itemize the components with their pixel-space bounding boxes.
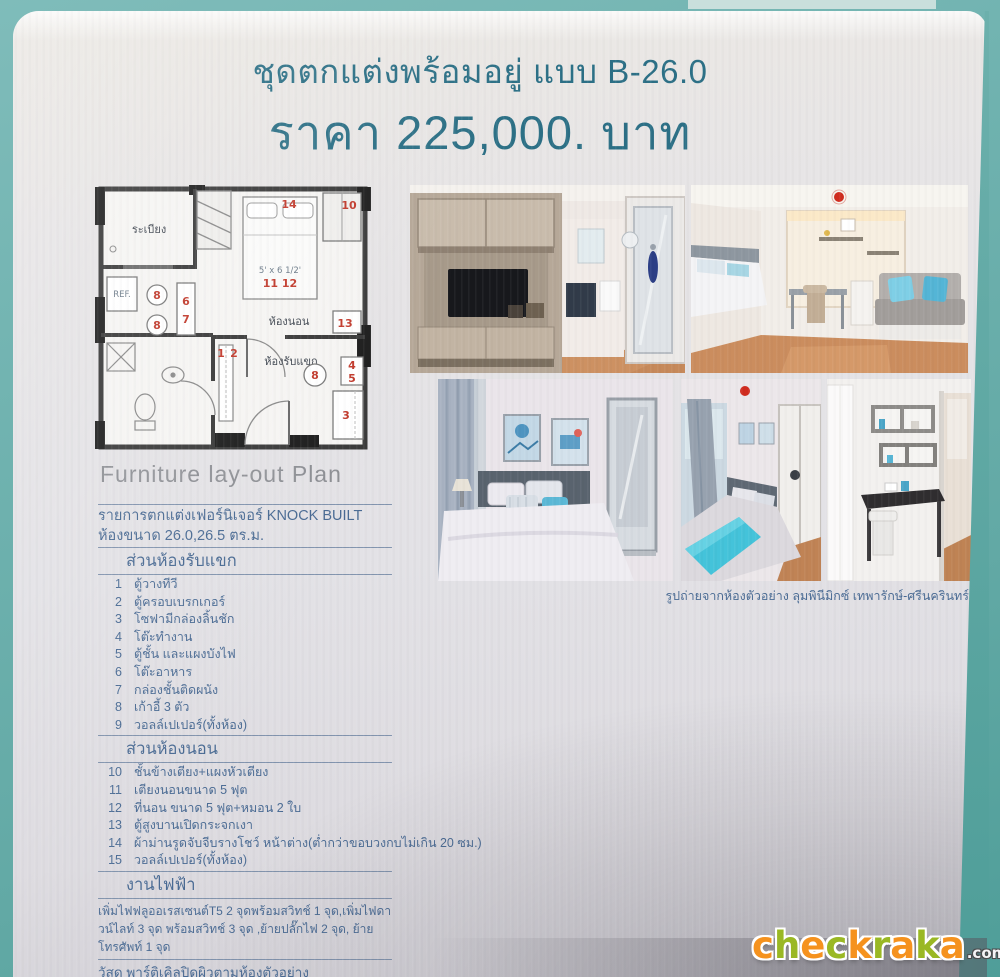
furniture-item: 8เก้าอี้ 3 ตัว [98,699,392,717]
furniture-item: 15วอลล์เปเปอร์(ทั้งห้อง) [98,852,392,870]
marker-8c: 8 [311,369,319,382]
item-label: วอลล์เปเปอร์(ทั้งห้อง) [134,717,247,735]
marker-4: 4 [348,359,356,372]
item-number: 6 [98,664,122,682]
photo-living-room-tv-wall-art [410,185,685,373]
marker-1: 1 [217,347,225,360]
furniture-item: 1ตู้วางทีวี [98,576,392,594]
item-number: 9 [98,717,122,735]
furniture-item: 13ตู้สูงบานเปิดกระจกเงา [98,817,392,835]
item-label: ตู้ชั้น และแผงบังไฟ [134,646,236,664]
item-label: วอลล์เปเปอร์(ทั้งห้อง) [134,852,247,870]
divider [98,898,392,899]
logo-letter: k [915,924,940,967]
sofa: 3 [333,391,363,439]
marker-6: 6 [182,295,190,308]
logo-letter: e [800,924,825,967]
furniture-item: 4โต๊ะทำงาน [98,629,392,647]
furniture-item: 12ที่นอน ขนาด 5 ฟุต+หมอน 2 ใบ [98,800,392,818]
item-number: 15 [98,852,122,870]
marker-5: 5 [348,372,356,385]
item-label: เก้าอี้ 3 ตัว [134,699,189,717]
logo-letter: a [890,924,915,967]
electrical-paragraph: เพิ่มไฟฟลูออเรสเซนต์T5 2 จุดพร้อมสวิทช์ … [98,900,392,958]
item-label: ตู้ครอบเบรกเกอร์ [134,594,225,612]
item-number: 14 [98,835,122,853]
plan-caption: Furniture lay-out Plan [100,461,380,488]
item-label: ผ้าม่านรูดจับจีบรางโชว์ หน้าต่าง(ต่ำกว่า… [134,835,482,853]
divider [98,574,392,575]
photo-living-room-tv-wall [410,185,685,373]
section-title-living: ส่วนห้องรับแขก [98,549,392,573]
promo-poster: ชุดตกแต่งพร้อมอยู่ แบบ B-26.0 ราคา 225,0… [13,11,987,977]
photo-desk-nook-art [827,379,971,581]
logo-suffix: .com [967,944,1000,962]
item-number: 12 [98,800,122,818]
marker-7: 7 [182,313,190,326]
checkraka-watermark: checkraka.com [752,924,1000,967]
logo-letter: r [872,924,890,967]
marker-13: 13 [337,317,352,330]
logo-letter: h [774,924,800,967]
bedroom-label: ห้องนอน [269,316,310,328]
mirror-cabinet: 13 [333,311,361,333]
furniture-item: 3โซฟามีกล่องลิ้นชัก [98,611,392,629]
page-title: ชุดตกแต่งพร้อมอยู่ แบบ B-26.0 [13,45,947,98]
item-number: 8 [98,699,122,717]
closet-hatch [197,191,231,249]
details-header-line1: รายการตกแต่งเฟอร์นิเจอร์ KNOCK BUILT [98,506,392,526]
item-number: 7 [98,682,122,700]
logo-letter: k [847,924,872,967]
item-label: กล่องชั้นติดผนัง [134,682,218,700]
item-label: เตียงนอนขนาด 5 ฟุต [134,782,248,800]
sign-photo: ชุดตกแต่งพร้อมอยู่ แบบ B-26.0 ราคา 225,0… [0,0,1000,977]
gallery-caption: รูปถ่ายจากห้องตัวอย่าง ลุมพินีมิกซ์ เทพา… [473,586,969,606]
divider [98,504,392,505]
furniture-details-panel: รายการตกแต่งเฟอร์นิเจอร์ KNOCK BUILT ห้อ… [98,503,392,977]
marker-14: 14 [281,198,297,211]
marker-3: 3 [342,409,350,422]
photo-sofa-corner [691,185,968,373]
photo-sofa-corner-art [691,185,968,373]
item-number: 13 [98,817,122,835]
item-label: โต๊ะทำงาน [134,629,192,647]
item-number: 3 [98,611,122,629]
marker-10: 10 [341,199,357,212]
furniture-item: 11เตียงนอนขนาด 5 ฟุต [98,782,392,800]
bed: 5' x 6 1/2' 11 12 [243,197,317,299]
floor-plan-drawing: ระเบียง REF. 8 8 6 7 5' [93,177,375,461]
item-number: 4 [98,629,122,647]
item-number: 5 [98,646,122,664]
logo-letter: c [825,924,847,967]
living-chair: 8 [304,364,326,386]
logo-letter: c [752,924,774,967]
photo-bedroom-window-art [681,379,821,581]
item-number: 2 [98,594,122,612]
item-label: โซฟามีกล่องลิ้นชัก [134,611,234,629]
item-label: ชั้นข้างเตียง+แผงหัวเตียง [134,764,268,782]
work-desk-shelf: 4 5 [341,357,363,385]
furniture-item: 6โต๊ะอาหาร [98,664,392,682]
section-title-electrical: งานไฟฟ้า [98,873,392,897]
divider [98,762,392,763]
marker-11-12: 11 12 [263,277,297,290]
photo-bedroom-mirror-art [438,379,673,581]
divider [98,547,392,548]
divider [98,735,392,736]
wall-highlight [688,0,936,9]
item-label: ตู้วางทีวี [134,576,178,594]
item-label: ที่นอน ขนาด 5 ฟุต+หมอน 2 ใบ [134,800,301,818]
furniture-item: 10ชั้นข้างเตียง+แผงหัวเตียง [98,764,392,782]
furniture-item: 7กล่องชั้นติดผนัง [98,682,392,700]
fridge: REF. [107,277,137,311]
wardrobe: 10 [323,193,361,241]
marker-2: 2 [230,347,238,360]
photo-bedroom-window [681,379,821,581]
item-number: 1 [98,576,122,594]
item-number: 11 [98,782,122,800]
furniture-item: 5ตู้ชั้น และแผงบังไฟ [98,646,392,664]
furniture-item: 2ตู้ครอบเบรกเกอร์ [98,594,392,612]
item-label: โต๊ะอาหาร [134,664,192,682]
marker-8a: 8 [153,289,161,302]
section-title-bedroom: ส่วนห้องนอน [98,737,392,761]
bed-size-label: 5' x 6 1/2' [259,266,301,276]
price-text: ราคา 225,000. บาท [13,95,947,170]
marker-8b: 8 [153,319,161,332]
furniture-item: 9วอลล์เปเปอร์(ทั้งห้อง) [98,717,392,735]
divider [98,871,392,872]
item-label: ตู้สูงบานเปิดกระจกเงา [134,817,253,835]
fridge-label: REF. [113,290,131,300]
furniture-item: 14ผ้าม่านรูดจับจีบรางโชว์ หน้าต่าง(ต่ำกว… [98,835,392,853]
material-note: วัสดุ พาร์ติเคิลปิดผิวตามห้องตัวอย่าง [98,961,392,977]
photo-bedroom-mirror [438,379,673,581]
logo-letter: a [940,924,965,967]
item-number: 10 [98,764,122,782]
details-header-line2: ห้องขนาด 26.0,26.5 ตร.ม. [98,526,392,546]
photo-desk-nook [827,379,971,581]
divider [98,959,392,960]
balcony-label: ระเบียง [132,223,166,236]
